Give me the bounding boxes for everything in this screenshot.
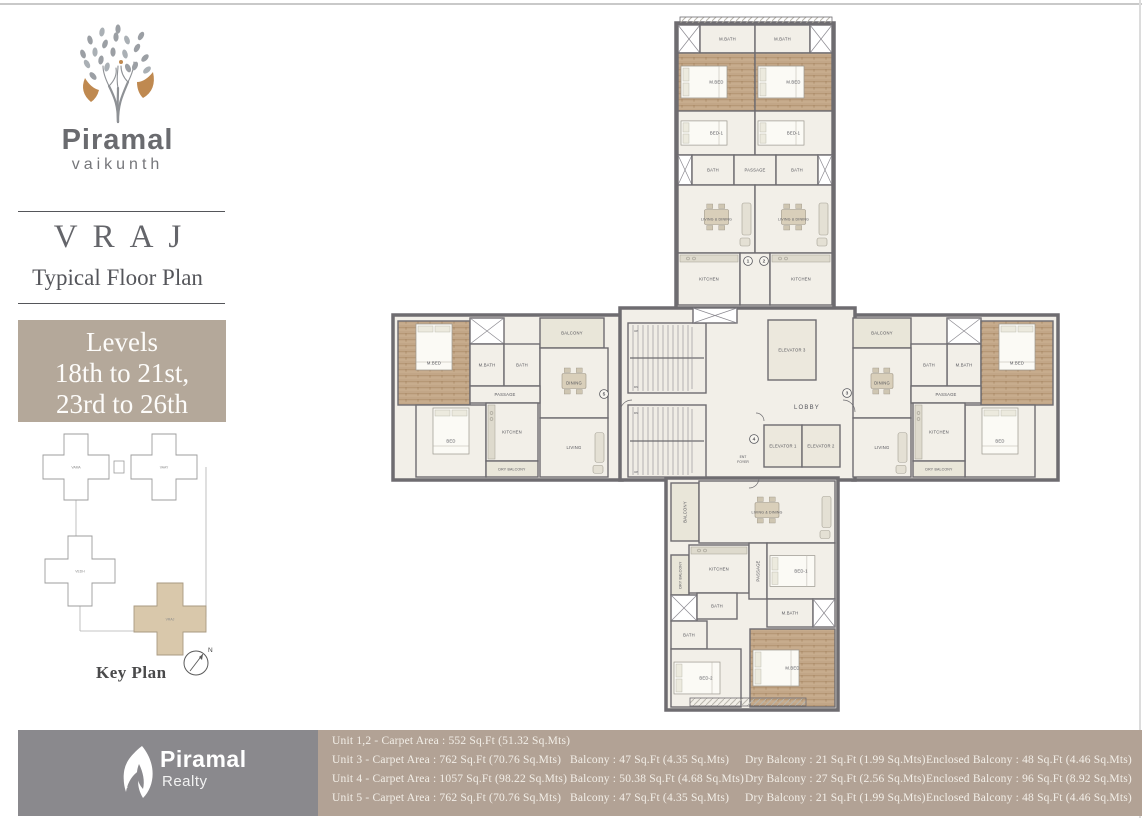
unit-area-cell: Unit 5 - Carpet Area : 762 Sq.Ft (70.76 … [332,792,561,804]
room-kitchen: KITCHEN [913,403,965,461]
room-m-bath: M.BATH [755,25,810,53]
svg-text:N: N [208,647,213,654]
svg-text:UP: UP [634,470,638,474]
room-bath: BATH [697,593,737,619]
svg-text:BED: BED [446,438,455,443]
svg-text:M.BED: M.BED [1010,360,1024,365]
room-living-dining: LIVING & DINING [755,185,832,253]
unit-marker-5: 5 [600,390,609,399]
room-balcony: BALCONY [671,483,699,541]
room-bath: BATH [504,344,540,386]
area-shaft [693,308,737,323]
svg-text:LIVING & DINING: LIVING & DINING [751,510,782,514]
svg-text:VEDH: VEDH [75,570,85,574]
svg-text:ELEVATOR 2: ELEVATOR 2 [807,443,835,448]
svg-text:PASSAGE: PASSAGE [744,167,765,172]
unit-area-cell: Unit 1,2 - Carpet Area : 552 Sq.Ft (51.3… [332,735,570,747]
svg-text:BED-1: BED-1 [794,568,808,573]
svg-text:BED-1: BED-1 [710,130,724,135]
svg-text:LIVING: LIVING [567,445,582,450]
piramal-realty-flame-icon [114,744,158,802]
svg-text:M.BATH: M.BATH [782,610,799,615]
area-shaft [818,155,832,185]
levels-badge: Levels 18th to 21st, 23rd to 26th [18,320,226,422]
key-plan-map: VAMAVAAYVEDHVRAJN [28,433,238,688]
area-stair [628,323,706,393]
svg-text:PASSAGE: PASSAGE [494,392,515,397]
area-shaft [678,25,700,53]
svg-text:M.BATH: M.BATH [774,36,791,41]
key-plan-building-vraj: VRAJ [134,583,206,655]
svg-text:1: 1 [747,259,750,265]
area-shaft [678,155,692,185]
svg-text:DRY BALCONY: DRY BALCONY [678,561,682,589]
svg-text:BATH: BATH [516,362,528,367]
unit-area-cell: Balcony : 47 Sq.Ft (4.35 Sq.Mts) [570,754,729,766]
svg-text:BATH: BATH [711,603,723,608]
svg-text:KITCHEN: KITCHEN [791,276,811,281]
svg-text:BATH: BATH [683,632,695,637]
area-hatch [680,17,832,23]
room-m-bed: M.BED [755,53,832,111]
info-panel: Piramal vaikunth VRAJ Typical Floor Plan… [0,0,240,730]
room-bed: BED [416,405,486,477]
room-living: LIVING [853,418,911,477]
brand-name: Piramal [10,124,225,157]
unit-marker-4: 4 [750,435,759,444]
area-shaft [947,318,981,344]
room-elevator-3: ELEVATOR 3 [768,320,816,380]
room-balcony: BALCONY [540,318,604,348]
key-plan-building-vama: VAMA [43,434,109,500]
svg-text:2: 2 [763,259,766,265]
area-shaft [671,595,697,621]
compass-icon: N [184,647,213,675]
svg-text:ELEVATOR 3: ELEVATOR 3 [778,347,806,352]
room-m-bath: M.BATH [470,344,504,386]
svg-text:BALCONY: BALCONY [561,330,582,335]
svg-text:LIVING & DINING: LIVING & DINING [778,217,809,221]
room-m-bath: M.BATH [947,344,981,386]
svg-text:KITCHEN: KITCHEN [929,429,949,434]
room-elevator-2: ELEVATOR 2 [802,425,840,467]
room-kitchen: KITCHEN [689,545,749,593]
unit-area-cell: Dry Balcony : 21 Sq.Ft (1.99 Sq.Mts) [745,792,926,804]
unit-marker-2: 2 [760,257,769,266]
svg-text:BATH: BATH [707,167,719,172]
room-bath: BATH [911,344,947,386]
svg-text:PASSAGE: PASSAGE [935,392,956,397]
tower-name: VRAJ [10,219,225,256]
svg-text:PASSAGE: PASSAGE [755,560,760,581]
room-bed-1: BED-1 [678,111,755,155]
svg-text:KITCHEN: KITCHEN [502,429,522,434]
svg-text:M.BED: M.BED [709,79,723,84]
vaikunth-tree-logo [57,22,179,126]
unit-area-cell: Enclosed Balcony : 48 Sq.Ft (4.46 Sq.Mts… [926,754,1132,766]
room-balcony: BALCONY [853,318,911,348]
room-m-bed: M.BED [398,321,470,405]
stair-dn-label: DN [634,385,638,389]
room-living-dining: LIVING & DINING [699,481,835,543]
svg-text:M.BED: M.BED [427,360,441,365]
svg-text:BALCONY: BALCONY [682,501,687,522]
svg-text:BED-1: BED-1 [787,130,801,135]
svg-text:VAAY: VAAY [160,466,169,470]
area-shaft [813,599,835,627]
unit-marker-3: 3 [843,389,852,398]
room-m-bath: M.BATH [767,599,813,627]
svg-text:LIVING & DINING: LIVING & DINING [701,217,732,221]
svg-text:DINING: DINING [566,380,582,385]
unit-area-cell: Balcony : 47 Sq.Ft (4.35 Sq.Mts) [570,792,729,804]
room-bath: BATH [776,155,818,185]
svg-text:FOYER: FOYER [737,460,749,464]
room-dining: DINING [853,348,911,418]
room-dry-balcony: DRY BALCONY [486,461,538,477]
svg-text:3: 3 [846,391,849,397]
svg-text:KITCHEN: KITCHEN [709,566,729,571]
realty-brand-name: Piramal [160,746,247,773]
unit-marker-1: 1 [744,257,753,266]
room-passage: PASSAGE [470,386,540,403]
svg-text:BED-2: BED-2 [699,675,713,680]
room-living: LIVING [540,418,608,477]
key-plan-building-vedh: VEDH [45,536,115,606]
room-m-bed: M.BED [981,321,1053,405]
key-plan-building-vaay: VAAY [131,434,197,500]
unit-area-cell: Unit 3 - Carpet Area : 762 Sq.Ft (70.76 … [332,754,561,766]
svg-text:DRY BALCONY: DRY BALCONY [925,467,953,471]
page-right-border [1139,0,1141,818]
room-bath: BATH [671,621,707,649]
levels-line-2: 18th to 21st, [18,358,226,389]
realty-brand-sub: Realty [162,773,208,790]
room-bed: BED [965,405,1035,477]
room-kitchen: KITCHEN [678,253,740,305]
svg-text:DRY BALCONY: DRY BALCONY [498,467,526,471]
svg-text:BED: BED [995,438,1004,443]
svg-text:BALCONY: BALCONY [871,330,892,335]
area-shaft [470,318,504,344]
area-hatch [690,698,806,706]
svg-text:M.BATH: M.BATH [479,362,496,367]
room-kitchen: KITCHEN [770,253,832,305]
room-m-bed: M.BED [678,53,755,111]
svg-text:DINING: DINING [874,380,890,385]
svg-text:4: 4 [753,437,756,443]
unit-area-cell: Balcony : 50.38 Sq.Ft (4.68 Sq.Mts) [570,773,744,785]
room-elevator-1: ELEVATOR 1 [764,425,802,467]
room-passage: PASSAGE [734,155,776,185]
divider-line [18,303,225,304]
unit-area-table: Unit 1,2 - Carpet Area : 552 Sq.Ft (51.3… [318,730,1142,816]
room-bed-1: BED-1 [755,111,832,155]
room-m-bath: M.BATH [700,25,755,53]
room-passage: PASSAGE [749,543,767,599]
room-bath: BATH [692,155,734,185]
unit-area-cell: Unit 4 - Carpet Area : 1057 Sq.Ft (98.22… [332,773,567,785]
typical-floor-plan-drawing: M.BATHM.BATHM.BEDM.BEDBED-1BED-1BATHPASS… [388,15,1068,715]
ent-foyer-label: ENT [740,455,747,459]
key-plan-title: Key Plan [96,663,167,683]
unit-area-cell: Enclosed Balcony : 96 Sq.Ft (8.92 Sq.Mts… [926,773,1132,785]
svg-text:5: 5 [603,392,606,398]
svg-text:VAMA: VAMA [71,466,81,470]
room-living-dining: LIVING & DINING [678,185,755,253]
unit-area-cell: Enclosed Balcony : 48 Sq.Ft (4.46 Sq.Mts… [926,792,1132,804]
levels-line-3: 23rd to 26th [18,389,226,420]
svg-text:M.BATH: M.BATH [956,362,973,367]
room-dry-balcony: DRY BALCONY [671,555,689,595]
room-dry-balcony: DRY BALCONY [913,461,965,477]
levels-line-1: Levels [18,327,226,358]
unit-area-cell: Dry Balcony : 21 Sq.Ft (1.99 Sq.Mts) [745,754,926,766]
svg-text:M.BATH: M.BATH [719,36,736,41]
lobby-label: LOBBY [794,405,820,411]
plan-subtitle: Typical Floor Plan [10,265,225,291]
svg-text:BATH: BATH [923,362,935,367]
room-m-bed: M.BED [750,629,835,707]
room-kitchen: KITCHEN [486,403,538,461]
divider-line [18,211,225,212]
room-bed-1: BED-1 [767,543,835,599]
svg-text:BATH: BATH [791,167,803,172]
area-stair [628,405,706,477]
area-shaft [810,25,832,53]
floor-plan-sheet: { "brand": {"name": "Piramal", "sub": "v… [0,0,1142,818]
piramal-realty-logo-block: Piramal Realty [18,730,318,816]
room-passage: PASSAGE [911,386,981,403]
stair-up-label: UP [634,329,638,333]
svg-text:DN: DN [634,411,638,415]
svg-text:M.BED: M.BED [786,79,800,84]
room-dining: DINING [540,348,608,418]
brand-subname: vaikunth [10,156,225,174]
svg-text:ELEVATOR 1: ELEVATOR 1 [769,443,797,448]
svg-text:M.BED: M.BED [785,665,799,670]
svg-text:LIVING: LIVING [875,445,890,450]
svg-text:VRAJ: VRAJ [166,618,175,622]
svg-text:KITCHEN: KITCHEN [699,276,719,281]
unit-area-cell: Dry Balcony : 27 Sq.Ft (2.56 Sq.Mts) [745,773,926,785]
